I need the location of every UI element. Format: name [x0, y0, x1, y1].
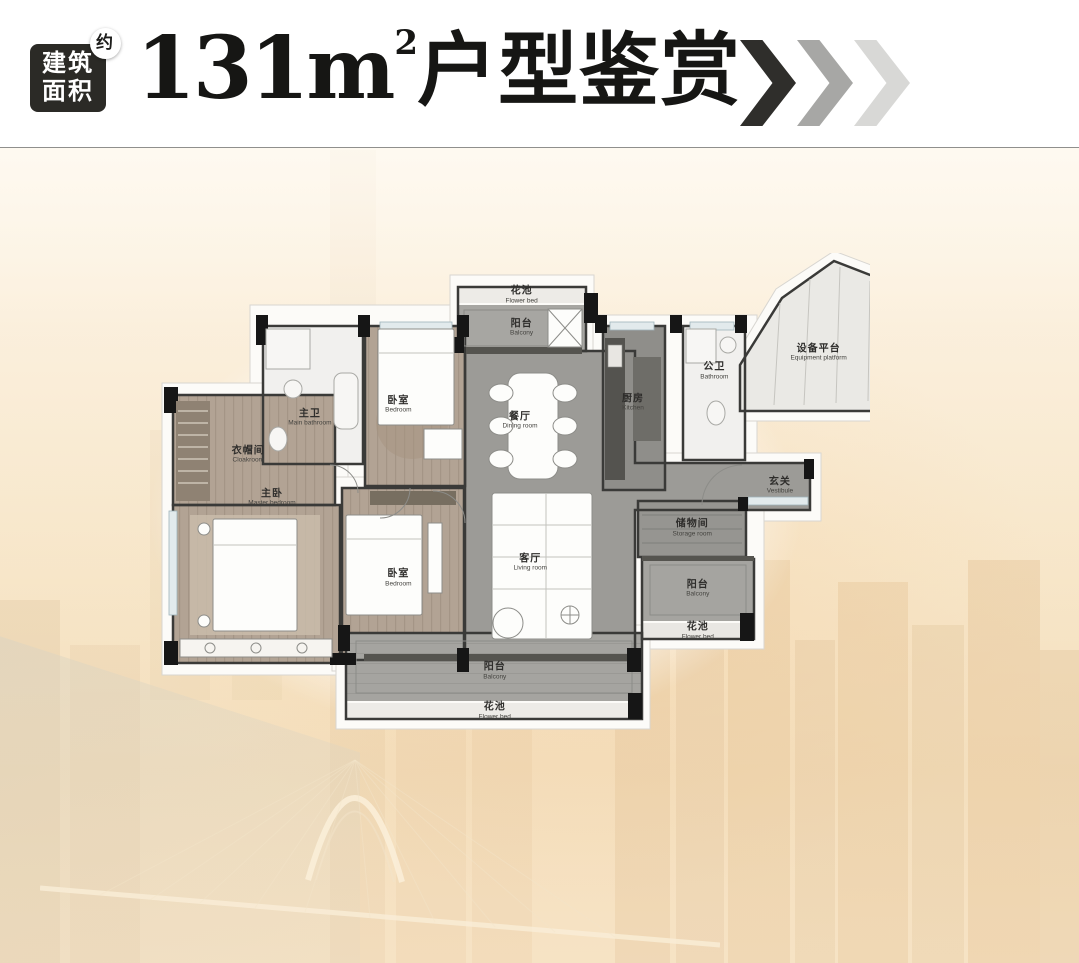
chevron-icon [854, 40, 910, 126]
room-label-equipment-platform: 设备平台 Equipment platform [790, 343, 846, 362]
room-label-balcony-right: 阳台 Balcony [686, 579, 709, 598]
room-label-dining-room: 餐厅 Dining room [502, 411, 537, 430]
room-label-storage-room: 储物间 Storage room [673, 519, 712, 538]
room-label-bathroom: 公卫 Bathroom [700, 362, 728, 381]
poster-page: 建筑 面积 约 131m2户型鉴赏 [0, 0, 1079, 963]
room-label-flower-bed-right: 花池 Flower bed [682, 622, 714, 641]
room-label-cloakroom: 衣帽间 Cloakroom [232, 445, 265, 464]
chevron-icon [740, 40, 796, 126]
chevron-icon [797, 40, 853, 126]
room-label-flower-bed-top: 花池 Flower bed [506, 286, 538, 305]
room-label-flower-bed-bottom: 花池 Flower bed [479, 702, 511, 721]
badge-line1: 建筑 [42, 50, 94, 78]
room-label-main-bathroom: 主卫 Main bathroom [288, 408, 331, 427]
title-superscript: 2 [394, 23, 418, 63]
floor-plan-drawing [80, 253, 870, 773]
room-label-bedroom-second: 卧室 Bedroom [385, 569, 411, 588]
building-area-badge: 建筑 面积 约 [30, 44, 106, 112]
room-label-bedroom-top: 卧室 Bedroom [385, 395, 411, 414]
approx-circle-badge: 约 [90, 28, 121, 59]
badge-line2: 面积 [42, 78, 94, 106]
title-text: 户型鉴赏 [417, 23, 741, 117]
room-label-living-room: 客厅 Living room [513, 553, 547, 572]
chevron-arrows [740, 40, 911, 126]
room-label-master-bedroom: 主卧 Master bedroom [248, 488, 295, 507]
room-label-balcony-bottom: 阳台 Balcony [483, 662, 506, 681]
room-label-vestibule: 玄关 Vestibule [767, 476, 793, 495]
room-label-balcony-top: 阳台 Balcony [510, 318, 533, 337]
header-bar: 建筑 面积 约 131m2户型鉴赏 [0, 0, 1079, 148]
floor-plan: 花池 Flower bed 阳台 Balcony 设备平台 Equipment … [80, 253, 870, 773]
page-title: 131m2户型鉴赏 [136, 6, 741, 122]
room-label-kitchen: 厨房 Kitchen [622, 393, 644, 412]
title-unit: m [307, 19, 394, 118]
title-number: 131 [136, 18, 307, 119]
